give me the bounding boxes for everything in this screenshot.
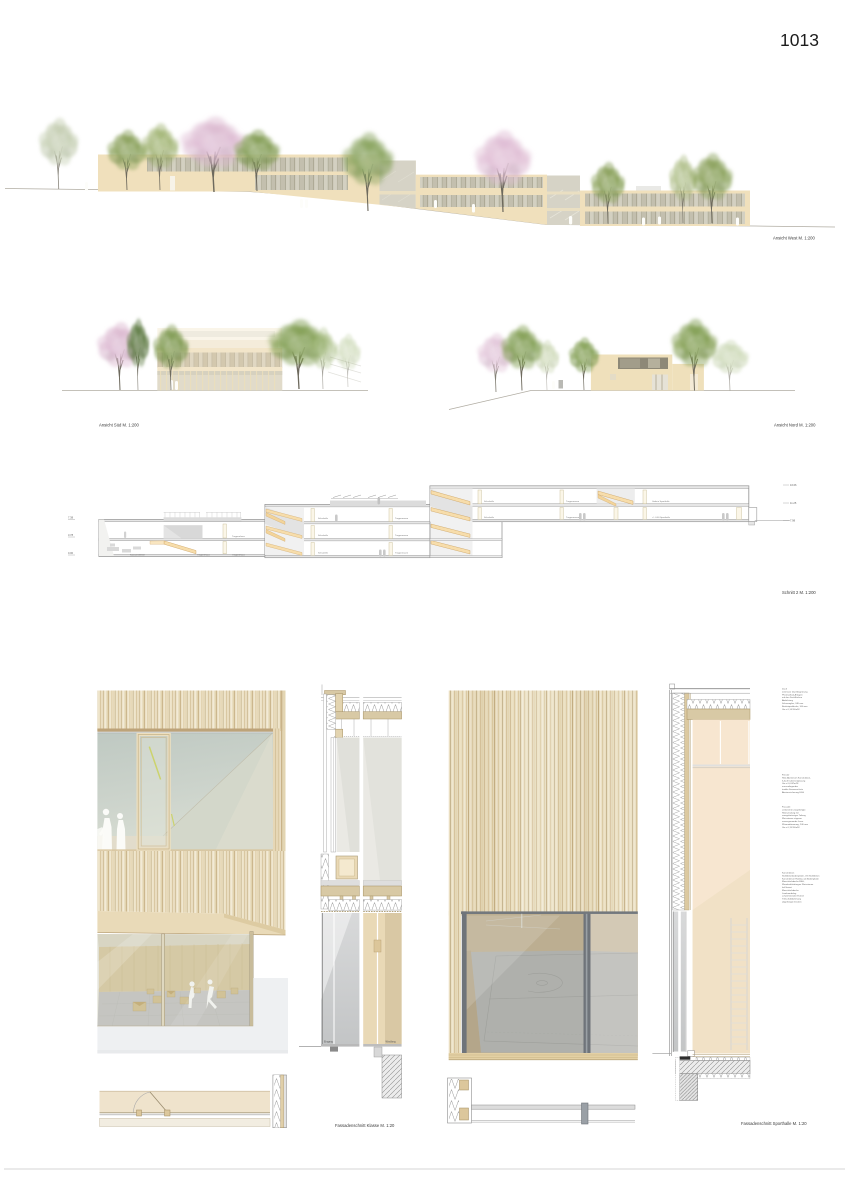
svg-text:extensive Dachbegrünung: extensive Dachbegrünung [782,690,808,693]
svg-text:Fenster: Fenster [782,774,790,777]
svg-text:3.78: 3.78 [68,533,74,537]
svg-text:7.38: 7.38 [68,516,74,520]
svg-text:1013: 1013 [780,30,819,50]
svg-text:Eingang: Eingang [324,1041,333,1044]
svg-text:Holzschalung mit: Holzschalung mit [782,811,799,814]
svg-text:Treppenraum: Treppenraum [566,500,579,503]
svg-text:Trittschalldämmung: Trittschalldämmung [782,898,802,901]
svg-text:Treppenhaus: Treppenhaus [232,535,246,538]
svg-text:Uw = 0,14 W/m2K: Uw = 0,14 W/m2K [782,709,800,711]
svg-text:abgehängte Decken: abgehängte Decken [782,901,802,904]
svg-text:hell lasiert: hell lasiert [782,886,792,889]
svg-text:Ansicht Nord M. 1:200: Ansicht Nord M. 1:200 [774,423,816,428]
svg-text:Konstruktion: Konstruktion [782,872,795,875]
svg-text:Galerie Sporthalle: Galerie Sporthalle [652,500,670,503]
svg-text:+/- 0.00 Sporthalle: +/- 0.00 Sporthalle [652,516,671,519]
svg-text:Fassadenschnitt Klasse M. 1:2: Fassadenschnitt Klasse M. 1:20 [335,1123,395,1128]
svg-text:auf den Dachflächen: auf den Dachflächen [782,697,803,699]
svg-text:Schulzelle: Schulzelle [318,535,329,537]
svg-text:Uw = 0,6 W/m2K: Uw = 0,6 W/m2K [782,783,799,785]
svg-text:Schnitt 2 M. 1:200: Schnitt 2 M. 1:200 [782,590,816,595]
svg-text:Brettstapeldecke, 100 mm: Brettstapeldecke, 100 mm [782,705,808,708]
svg-text:Stahlbetonbodenplatte, UG Stah: Stahlbetonbodenplatte, UG Stahlbeton [782,874,820,877]
svg-text:Wandverkleidungen Weisstanne: Wandverkleidungen Weisstanne [782,883,814,886]
svg-text:Linoleumbelag: Linoleumbelag [782,893,797,895]
svg-text:textiler Sonnenschutz: textiler Sonnenschutz [782,788,803,791]
svg-text:vorvergrauende Lasur: vorvergrauende Lasur [782,820,804,823]
svg-text:Treppenhaus: Treppenhaus [197,553,211,556]
svg-text:unregelmässiger Teilung: unregelmässiger Teilung [782,814,806,817]
svg-text:Fassade: Fassade [782,807,791,809]
svg-text:Schaumglas, 240 mm: Schaumglas, 240 mm [782,703,803,705]
svg-text:Dach: Dach [782,689,788,691]
svg-text:Windfang: Windfang [386,1041,397,1044]
svg-text:Schulzelle: Schulzelle [318,518,329,520]
svg-text:Treppenraum: Treppenraum [566,516,579,519]
svg-text:Weisstanne sägerau: Weisstanne sägerau [782,817,803,820]
svg-text:Klassenzimmer: Klassenzimmer [130,553,145,556]
svg-text:Treppenhaus: Treppenhaus [232,553,246,556]
svg-text:16.06: 16.06 [790,483,797,487]
svg-text:schwimmender Estrich: schwimmender Estrich [782,895,805,898]
svg-text:Treppenraum: Treppenraum [395,551,408,554]
svg-text:7.98: 7.98 [790,518,796,522]
svg-text:Holz-Aluminium Konstruktion,: Holz-Aluminium Konstruktion, [782,776,811,779]
svg-text:Schulzelle: Schulzelle [484,517,495,519]
svg-text:Schulzelle: Schulzelle [484,501,495,503]
svg-text:Ansicht West M. 1:200: Ansicht West M. 1:200 [773,236,815,241]
svg-text:11.25: 11.25 [790,501,797,505]
svg-text:Konstruktiver Holzbau ab Boden: Konstruktiver Holzbau ab Bodenplatte [782,877,820,880]
svg-text:Massivholzdecke: Massivholzdecke [782,890,799,892]
svg-text:3-fach Isolierverglasung: 3-fach Isolierverglasung [782,779,806,782]
svg-text:Ansicht Süd M. 1:200: Ansicht Süd M. 1:200 [99,423,139,428]
svg-text:Abdichtung: Abdichtung [782,699,794,702]
svg-text:aussenliegender: aussenliegender [782,785,798,788]
svg-text:Absturzsicherung ESG: Absturzsicherung ESG [782,791,804,794]
svg-text:Treppenraum: Treppenraum [395,534,408,537]
svg-text:Schulzelle: Schulzelle [318,552,329,554]
svg-text:Uw = 0,15 W/m2K: Uw = 0,15 W/m2K [782,827,800,829]
svg-text:0.00: 0.00 [68,551,74,555]
svg-text:Fassadenschnitt Sporthalle M.: Fassadenschnitt Sporthalle M. 1:20 [741,1121,807,1126]
svg-text:senkrechte vorgefertigte: senkrechte vorgefertigte [782,808,806,811]
svg-text:Wärmedämmung, 240 mm: Wärmedämmung, 240 mm [782,823,808,826]
svg-text:Photovoltaik-Anlagen: Photovoltaik-Anlagen [782,693,803,696]
svg-text:Massivholzdecke BSH,: Massivholzdecke BSH, [782,881,805,883]
svg-text:Treppenraum: Treppenraum [395,517,408,520]
